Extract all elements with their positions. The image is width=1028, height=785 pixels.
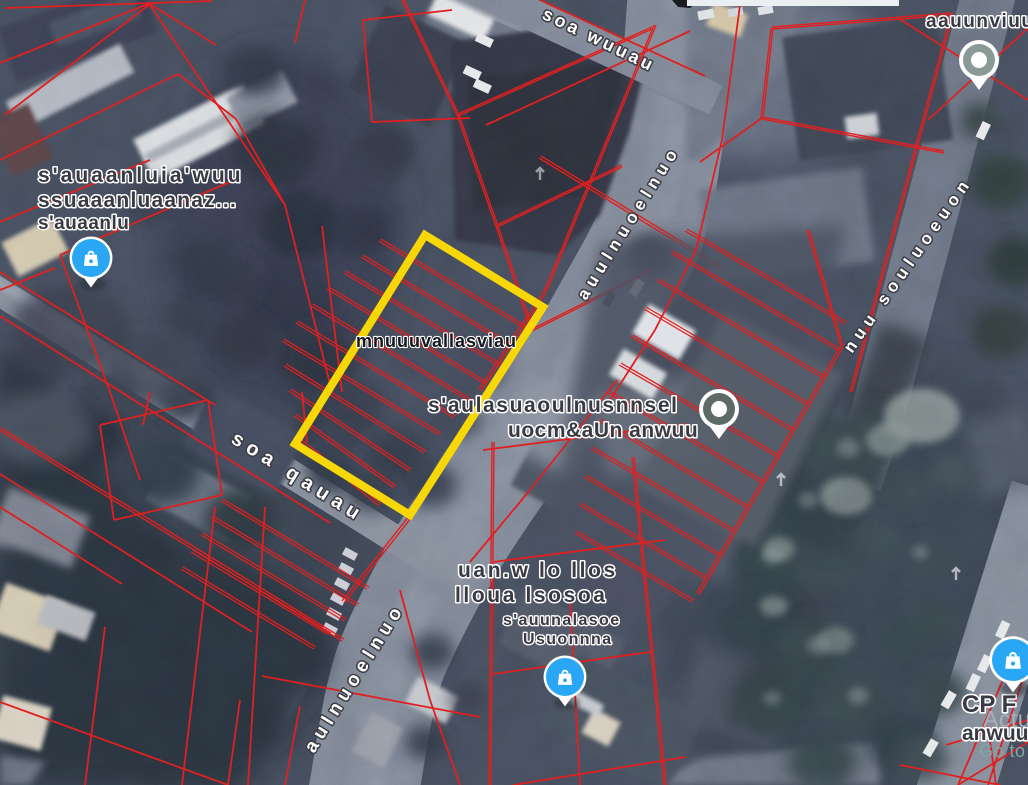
svg-text:ssuaaanluaanaz...: ssuaaanluaanaz... xyxy=(38,189,237,212)
svg-text:s'auaanlu: s'auaanlu xyxy=(38,213,129,234)
svg-text:uocm&aUn anwuu: uocm&aUn anwuu xyxy=(508,419,698,442)
svg-text:mnuuuvallasviau: mnuuuvallasviau xyxy=(356,331,517,351)
svg-text:Go to: Go to xyxy=(979,741,1026,761)
svg-text:s'auaanluia'wuu: s'auaanluia'wuu xyxy=(38,164,244,187)
svg-text:uan.w lo llos: uan.w lo llos xyxy=(458,559,618,582)
svg-text:aauunviuu: aauunviuu xyxy=(926,11,1028,32)
svg-text:Usuonnna: Usuonnna xyxy=(523,631,612,648)
svg-text:lloua lsosoa: lloua lsosoa xyxy=(455,584,608,607)
svg-text:s'aulasuaoulnusnnsel: s'aulasuaoulnusnnsel xyxy=(428,394,679,417)
svg-text:Actu: Actu xyxy=(983,706,1028,732)
svg-text:s'auunalasoe: s'auunalasoe xyxy=(503,612,621,629)
